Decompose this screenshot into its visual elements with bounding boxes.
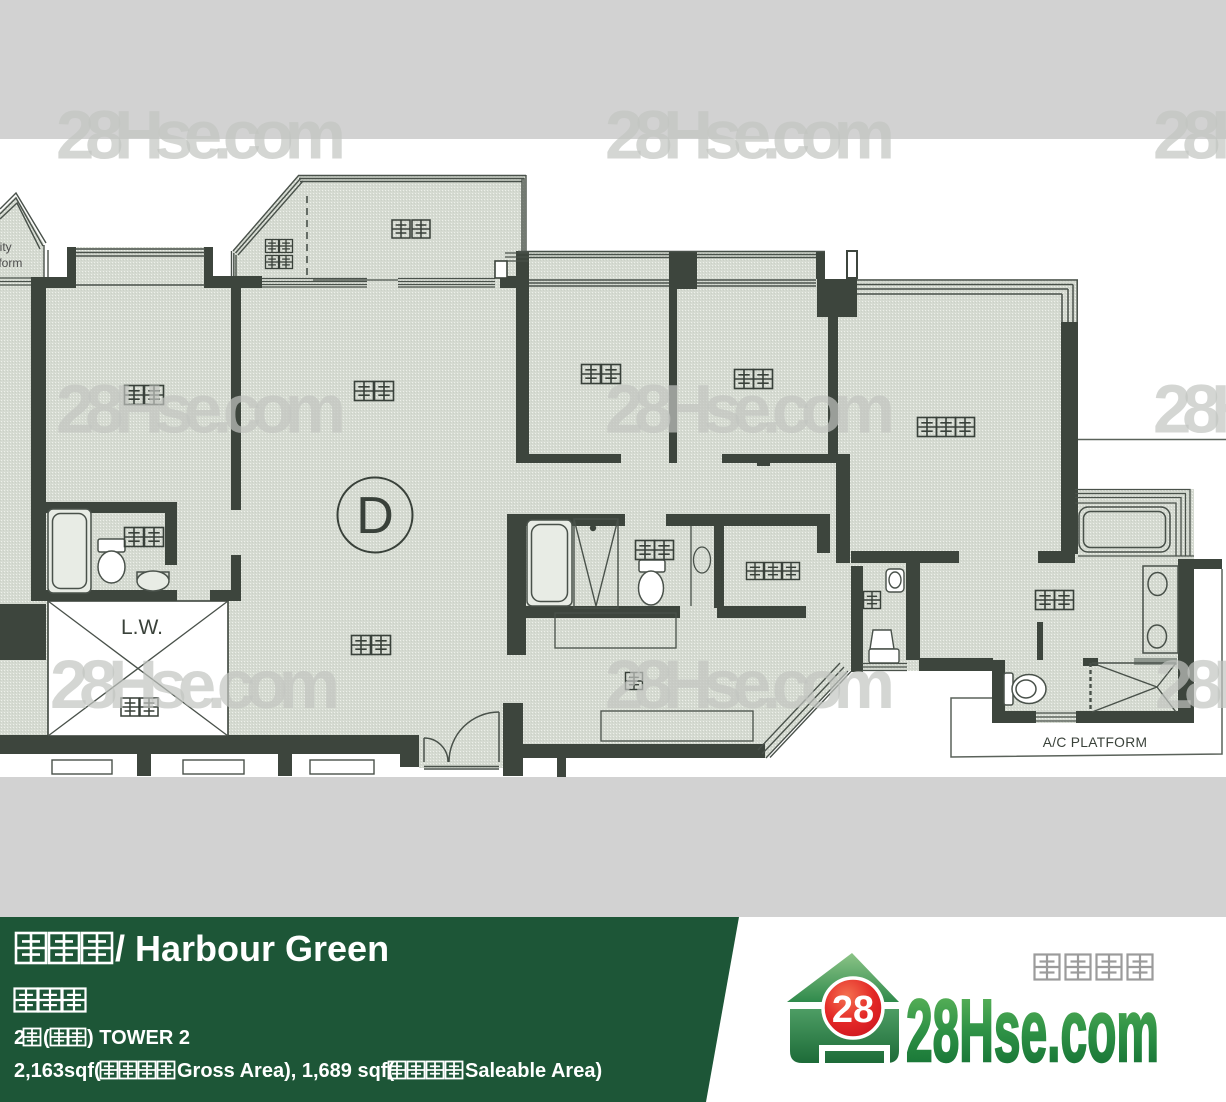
svg-text:2,163sqf(: 2,163sqf( xyxy=(14,1060,101,1082)
svg-text:A/C PLATFORM: A/C PLATFORM xyxy=(1043,735,1148,750)
svg-text:L.W.: L.W. xyxy=(121,616,163,639)
svg-text:/ Harbour Green: / Harbour Green xyxy=(115,928,389,969)
svg-text:(: ( xyxy=(43,1027,50,1049)
svg-text:Saleable Area): Saleable Area) xyxy=(465,1060,602,1082)
svg-text:28Hse.com: 28Hse.com xyxy=(605,371,895,448)
svg-text:28Hse.com: 28Hse.com xyxy=(50,646,340,723)
svg-text:) TOWER 2: ) TOWER 2 xyxy=(87,1027,190,1049)
svg-text:28Hse.com: 28Hse.com xyxy=(1153,97,1226,174)
svg-text:lity: lity xyxy=(0,240,12,254)
svg-text:tform: tform xyxy=(0,256,22,270)
svg-text:28Hse.com: 28Hse.com xyxy=(1153,371,1226,448)
svg-text:28: 28 xyxy=(832,989,874,1031)
svg-text:28Hse.com: 28Hse.com xyxy=(56,97,346,174)
svg-text:28Hse.com: 28Hse.com xyxy=(906,981,1159,1080)
svg-text:28Hse.com: 28Hse.com xyxy=(1155,646,1226,723)
svg-text:28Hse.com: 28Hse.com xyxy=(56,371,346,448)
svg-text:D: D xyxy=(356,487,394,545)
svg-text:28Hse.com: 28Hse.com xyxy=(605,646,895,723)
svg-text:28Hse.com: 28Hse.com xyxy=(605,97,895,174)
svg-text:Gross Area), 1,689 sqf(: Gross Area), 1,689 sqf( xyxy=(177,1060,394,1082)
